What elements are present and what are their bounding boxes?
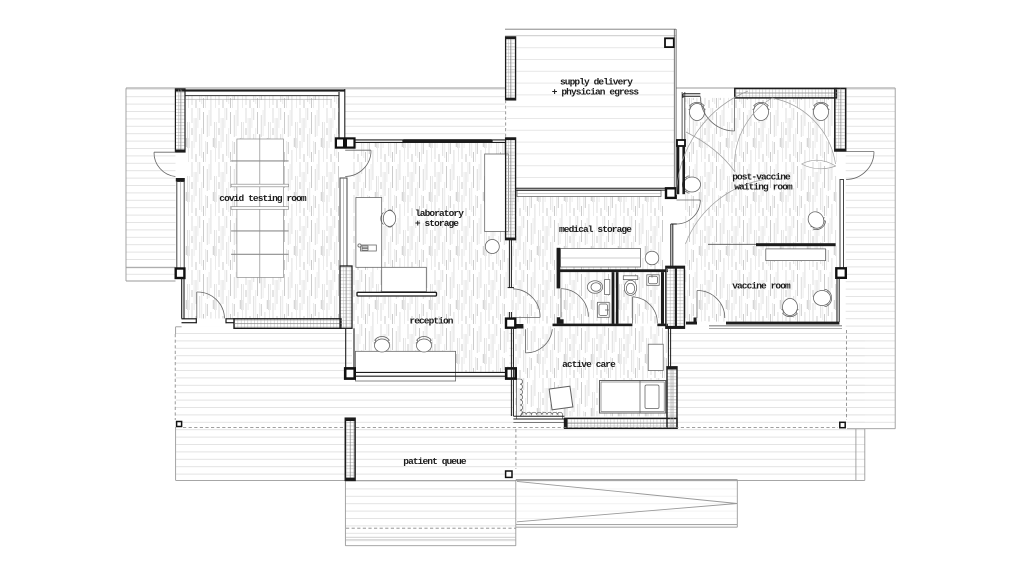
- svg-text:patient queue: patient queue: [403, 456, 467, 467]
- svg-text:+ storage: + storage: [415, 218, 459, 229]
- svg-text:medical storage: medical storage: [559, 224, 632, 235]
- svg-text:reception: reception: [409, 316, 453, 327]
- svg-text:covid testing room: covid testing room: [219, 193, 307, 204]
- svg-text:active care: active care: [562, 359, 616, 370]
- svg-text:waiting room: waiting room: [734, 182, 793, 193]
- svg-text:vaccine room: vaccine room: [732, 281, 791, 292]
- svg-text:+ physician egress: + physician egress: [552, 87, 640, 98]
